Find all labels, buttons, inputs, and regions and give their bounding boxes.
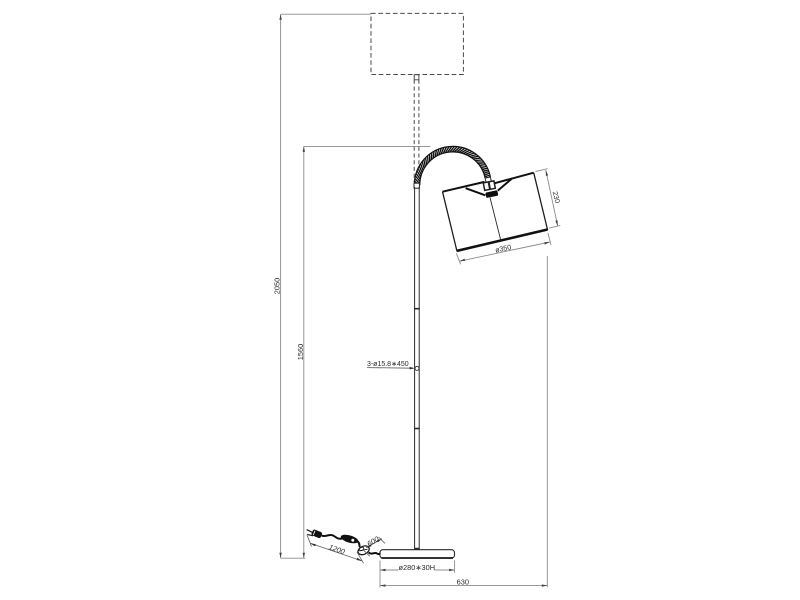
svg-text:ø280∗30H: ø280∗30H bbox=[398, 563, 435, 572]
svg-text:630: 630 bbox=[457, 577, 469, 586]
svg-text:3-ø15.8∗450: 3-ø15.8∗450 bbox=[367, 361, 409, 368]
svg-text:2050: 2050 bbox=[273, 278, 282, 294]
svg-text:1560: 1560 bbox=[296, 344, 305, 360]
